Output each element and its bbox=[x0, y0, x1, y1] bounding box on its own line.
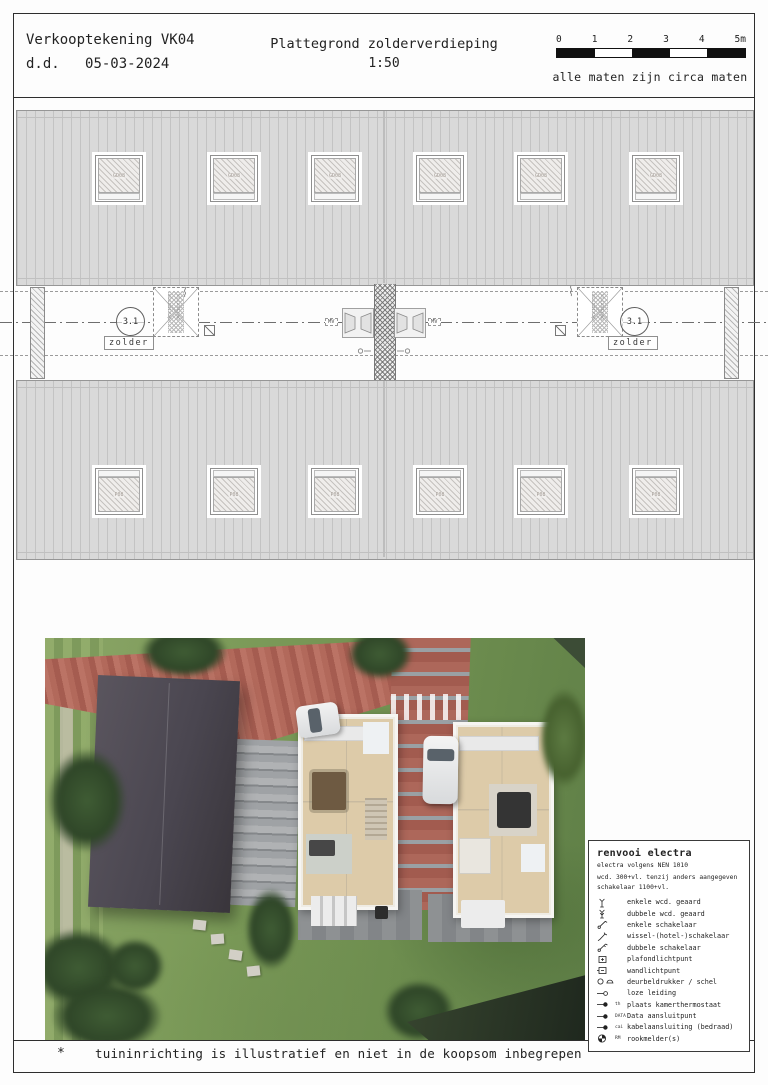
tree bbox=[245, 888, 297, 970]
roof-plane-bottom bbox=[16, 380, 754, 560]
drawing-name: Verkooptekening VK04 bbox=[26, 32, 195, 48]
mv-unit-label: MV bbox=[428, 318, 441, 326]
switch-symbol bbox=[181, 286, 189, 298]
legend-item-label: kabelaansluiting (bedraad) bbox=[627, 1023, 733, 1031]
legend-row: wandlichtpunt bbox=[597, 965, 741, 976]
legend-note-line2: schakelaar 1100+vl. bbox=[597, 883, 741, 893]
bed bbox=[459, 838, 491, 874]
scale-segment bbox=[670, 49, 708, 57]
conduit-symbol bbox=[356, 346, 372, 356]
switch-symbol bbox=[567, 285, 575, 297]
tree bbox=[47, 748, 127, 853]
ventilation-valve-symbol bbox=[204, 325, 215, 336]
legend-title: renvooi electra bbox=[597, 848, 741, 859]
room-name: zolder bbox=[104, 336, 154, 350]
drawing-title: Plattegrond zolderverdieping bbox=[234, 36, 534, 52]
garden-table bbox=[461, 900, 505, 928]
car bbox=[422, 736, 458, 805]
dwelling-separation-seam bbox=[383, 381, 385, 557]
legend-item-label: loze leiding bbox=[627, 989, 676, 997]
date-label: d.d. bbox=[26, 56, 60, 72]
bush bbox=[105, 938, 165, 994]
mv-unit-label: MV bbox=[325, 318, 338, 326]
single-switch-icon bbox=[597, 919, 627, 930]
scale-bar: 012345m bbox=[556, 34, 746, 58]
room-number: 3.1 bbox=[116, 307, 145, 336]
room-number: 3.1 bbox=[620, 307, 649, 336]
ceiling-light-icon bbox=[597, 954, 627, 965]
legend-row: caikabelaansluiting (bedraad) bbox=[597, 1022, 741, 1033]
sofa bbox=[309, 840, 335, 856]
ventilation-valve-symbol bbox=[555, 325, 566, 336]
drawing-date: d.d. 05-03-2024 bbox=[26, 56, 169, 72]
scale-tick-label: 2 bbox=[627, 34, 633, 45]
end-wall-hatch bbox=[30, 287, 45, 379]
loft-hatch: vlizotrap vlizotrap bbox=[577, 287, 623, 337]
legend-row: dubbele wcd. geaard bbox=[597, 908, 741, 919]
mv-unit-symbol bbox=[342, 308, 374, 338]
side-wall bbox=[229, 739, 301, 907]
stepping-stone bbox=[228, 949, 242, 961]
scale-tick-label: 0 bbox=[556, 34, 562, 45]
legend-subtitle: electra volgens NEN 1010 bbox=[597, 862, 741, 869]
scale-bar-ticks: 012345m bbox=[556, 34, 746, 45]
legend-item-label: rookmelder(s) bbox=[627, 1035, 680, 1043]
legend-row: enkele schakelaar bbox=[597, 919, 741, 930]
legend-item-label: dubbele wcd. geaard bbox=[627, 910, 705, 918]
legend-note: wcd. 300+vl. tenzij anders aangegeven sc… bbox=[597, 873, 741, 893]
legend-row: RMrookmelder(s) bbox=[597, 1033, 741, 1044]
legend-row: plafondlichtpunt bbox=[597, 953, 741, 964]
legend-item-label: deurbeldrukker / schel bbox=[627, 978, 717, 986]
footnote-marker: * bbox=[57, 1046, 65, 1061]
thermostat-icon: th bbox=[597, 999, 627, 1010]
legend-symbol-tag: DATA bbox=[615, 1014, 626, 1019]
barbecue bbox=[375, 906, 388, 919]
cable-icon: cai bbox=[597, 1022, 627, 1033]
single-socket-icon bbox=[597, 897, 627, 908]
electrical-legend: renvooi electra electra volgens NEN 1010… bbox=[588, 840, 750, 1052]
loft-hatch: vlizotrap vlizotrap bbox=[153, 287, 199, 337]
date-value: 05-03-2024 bbox=[85, 56, 169, 72]
loft-hatch-label: vlizotrap bbox=[600, 294, 605, 320]
legend-symbol-tag: RM bbox=[615, 1036, 620, 1041]
scale-tick-label: 4 bbox=[699, 34, 705, 45]
dining-table bbox=[312, 772, 346, 810]
dwelling-separation-seam bbox=[383, 111, 385, 283]
legend-note-line1: wcd. 300+vl. tenzij anders aangegeven bbox=[597, 873, 741, 883]
staircase bbox=[365, 798, 387, 840]
stepping-stone bbox=[211, 934, 225, 945]
legend-item-label: wissel-(hotel-)schakelaar bbox=[627, 932, 729, 940]
scale-tick-label: 1 bbox=[592, 34, 598, 45]
doorbell-icon bbox=[597, 976, 627, 987]
legend-symbol-tag: th bbox=[615, 1002, 620, 1007]
car bbox=[295, 701, 341, 739]
scale-tick-label: 5m bbox=[735, 34, 746, 45]
data-icon: DATA bbox=[597, 1011, 627, 1022]
roof-plane-top bbox=[16, 110, 754, 286]
legend-row: enkele wcd. geaard bbox=[597, 897, 741, 908]
wall-light-icon bbox=[597, 965, 627, 976]
legend-item-label: enkele schakelaar bbox=[627, 921, 697, 929]
scale-segment bbox=[595, 49, 633, 57]
conduit-symbol bbox=[396, 346, 412, 356]
drawing-scale: 1:50 bbox=[234, 56, 534, 71]
footnote-text: tuininrichting is illustratief en niet i… bbox=[95, 1046, 582, 1061]
legend-item-label: Data aansluitpunt bbox=[627, 1012, 697, 1020]
double-socket-icon bbox=[597, 908, 627, 919]
scale-segment bbox=[557, 49, 595, 57]
measures-note: alle maten zijn circa maten bbox=[552, 70, 748, 84]
legend-row: thplaats kamerthermostaat bbox=[597, 999, 741, 1010]
end-wall-hatch bbox=[724, 287, 739, 379]
legend-item-label: wandlichtpunt bbox=[627, 967, 680, 975]
legend-row: deurbeldrukker / schel bbox=[597, 976, 741, 987]
stepping-stone bbox=[193, 919, 207, 930]
smoke-detector-icon: RM bbox=[597, 1033, 627, 1044]
stepping-stone bbox=[247, 965, 261, 976]
bathroom bbox=[521, 844, 545, 872]
hedge bbox=[539, 688, 585, 788]
room-name: zolder bbox=[608, 336, 658, 350]
scale-segment bbox=[632, 49, 670, 57]
scale-bar-segments bbox=[556, 48, 746, 58]
double-switch-icon bbox=[597, 942, 627, 953]
kitchen-counter bbox=[459, 736, 539, 751]
legend-row: dubbele schakelaar bbox=[597, 942, 741, 953]
aerial-site-render bbox=[45, 638, 585, 1040]
loft-hatch-label: vlizotrap bbox=[167, 294, 172, 320]
legend-items: enkele wcd. geaarddubbele wcd. geaardenk… bbox=[597, 897, 741, 1045]
loft-hatch-label: vlizotrap bbox=[591, 294, 596, 320]
party-wall-hatch bbox=[374, 284, 396, 380]
legend-symbol-tag: cai bbox=[615, 1025, 623, 1030]
drawing-sheet: Verkooptekening VK04 d.d. 05-03-2024 Pla… bbox=[0, 0, 768, 1085]
legend-item-label: plafondlichtpunt bbox=[627, 955, 692, 963]
conduit-icon bbox=[597, 988, 627, 999]
paving-accent-stripes bbox=[391, 694, 463, 720]
scale-segment bbox=[707, 49, 745, 57]
bathroom bbox=[363, 722, 389, 754]
legend-item-label: enkele wcd. geaard bbox=[627, 898, 701, 906]
two-way-switch-icon bbox=[597, 931, 627, 942]
legend-item-label: dubbele schakelaar bbox=[627, 944, 701, 952]
legend-row: DATAData aansluitpunt bbox=[597, 1010, 741, 1021]
scale-tick-label: 3 bbox=[663, 34, 669, 45]
lounge-set bbox=[497, 792, 531, 828]
sun-loungers bbox=[311, 896, 357, 926]
legend-item-label: plaats kamerthermostaat bbox=[627, 1001, 721, 1009]
legend-row: loze leiding bbox=[597, 988, 741, 999]
legend-row: wissel-(hotel-)schakelaar bbox=[597, 931, 741, 942]
mv-unit-symbol bbox=[394, 308, 426, 338]
title-block-divider bbox=[13, 97, 754, 98]
